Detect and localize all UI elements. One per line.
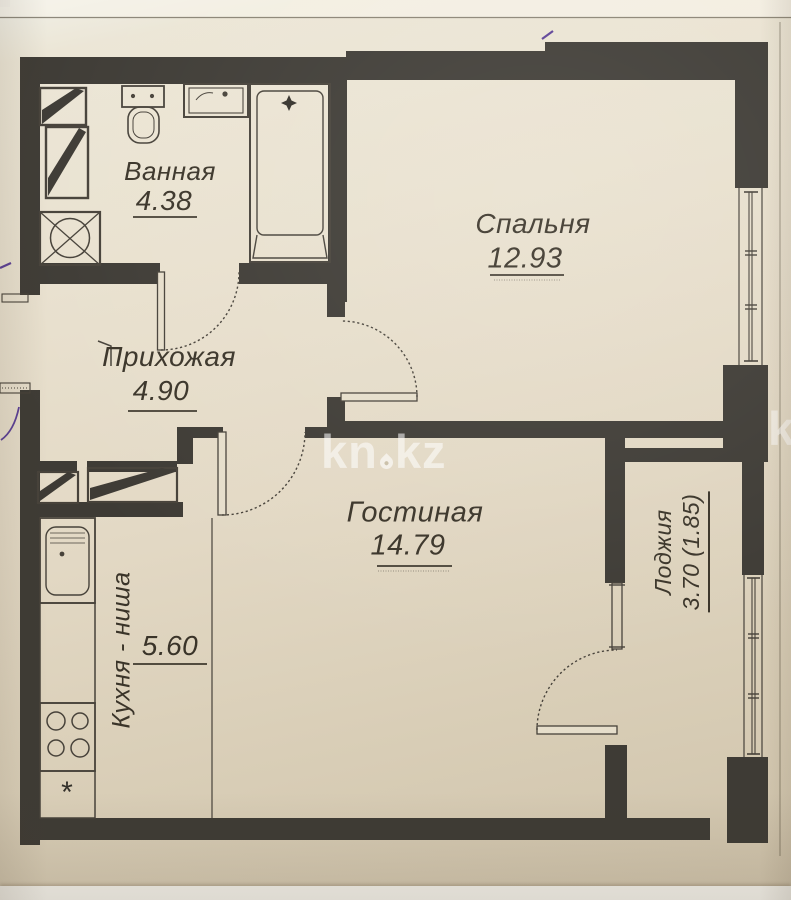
watermark-left: kn	[321, 428, 378, 475]
loggia-window	[744, 575, 762, 757]
wall-left-upper	[20, 57, 40, 295]
ink-tick-top	[542, 31, 553, 39]
wall-right-upper	[735, 42, 768, 188]
entry-door-arc-ink	[1, 407, 19, 440]
wall-hall-kitchen-connector	[177, 437, 193, 464]
wall-living-door-left	[177, 427, 223, 438]
ventilation-shafts	[40, 88, 88, 198]
loggia-area: 3.70 (1.85)	[676, 492, 710, 613]
floor-plan-photo: Ванная 4.38 Спальня 12.93 Прихожая 4.90 …	[0, 0, 791, 900]
bedroom-area-underline	[490, 274, 564, 276]
closet-small-diagonal	[40, 472, 76, 501]
bathtub	[250, 84, 330, 262]
living-room-area: 14.79	[370, 532, 445, 561]
wall-loggia-corner	[727, 757, 768, 843]
bedroom-label: Спальня	[475, 210, 590, 238]
wall-hall-bedroom-upper	[327, 284, 345, 317]
kitchen-area: 5.60	[142, 632, 199, 660]
kitchen-counter	[40, 603, 95, 703]
wash-basin	[184, 84, 248, 117]
balcony-door-arc	[537, 650, 617, 730]
bathroom-area-underline	[133, 216, 197, 218]
wall-bathroom-bottom-right	[239, 263, 346, 284]
bathroom-door-arc	[161, 272, 239, 350]
loggia-label-block: Лоджия 3.70 (1.85)	[652, 492, 710, 613]
wall-loggia-right-upper	[742, 462, 764, 575]
kitchen-faucet	[60, 552, 65, 557]
wall-closet-bottom	[33, 502, 183, 517]
watermark-right: kz	[395, 428, 447, 475]
washing-machine	[40, 212, 100, 265]
wall-top-bathroom	[20, 57, 346, 84]
bathroom-area: 4.38	[136, 187, 193, 215]
hallway-area-underline	[128, 410, 197, 412]
bedroom-window	[739, 188, 762, 365]
bedroom-area: 12.93	[487, 245, 562, 274]
watermark-partial-right: k	[768, 405, 791, 452]
stove	[40, 703, 95, 771]
closet-wide-diagonal	[90, 468, 175, 500]
bathroom-label: Ванная	[124, 158, 216, 184]
living-room-area-underline	[377, 565, 452, 567]
toilet	[122, 86, 164, 143]
kitchen-note-asterisk: *	[61, 776, 73, 810]
hallway-area: 4.90	[133, 377, 190, 405]
wall-loggia-top	[622, 448, 733, 462]
shower-sparkle-icon	[281, 95, 297, 111]
wall-closet-top-a	[33, 461, 77, 472]
wall-bathroom-bottom-left	[40, 263, 160, 284]
kitchen-label: Кухня - ниша	[110, 571, 135, 728]
kitchen-area-underline	[133, 663, 207, 665]
hallway-label: Прихожая	[102, 343, 236, 371]
water-drop-icon	[377, 453, 395, 471]
bedroom-door-leaf	[341, 393, 417, 401]
watermark-kn-kz: kn kz	[321, 428, 447, 475]
paper-bottom-edge	[0, 886, 791, 900]
ink-tick-left	[0, 263, 11, 268]
wall-right-mid	[723, 365, 768, 462]
living-room-door-leaf	[218, 432, 226, 515]
entry-jamb	[2, 294, 28, 302]
living-room-label: Гостиная	[347, 499, 484, 528]
balcony-window-panel	[609, 583, 625, 649]
living-room-door-arc	[222, 432, 305, 515]
wall-balcony-stub	[605, 745, 627, 823]
wall-top-bedroom-right	[545, 42, 768, 80]
bathroom-door-leaf	[158, 272, 165, 350]
vent-shaft-tall-diagonal	[48, 128, 86, 196]
vent-shaft-small-diagonal	[42, 88, 84, 124]
loggia-label: Лоджия	[652, 492, 675, 613]
wall-left-lower	[20, 390, 40, 845]
wall-top-bedroom-left	[346, 51, 546, 80]
bedroom-door-arc	[341, 321, 417, 397]
kitchen-sink-basin	[46, 527, 89, 595]
balcony-door-leaf	[537, 726, 617, 734]
